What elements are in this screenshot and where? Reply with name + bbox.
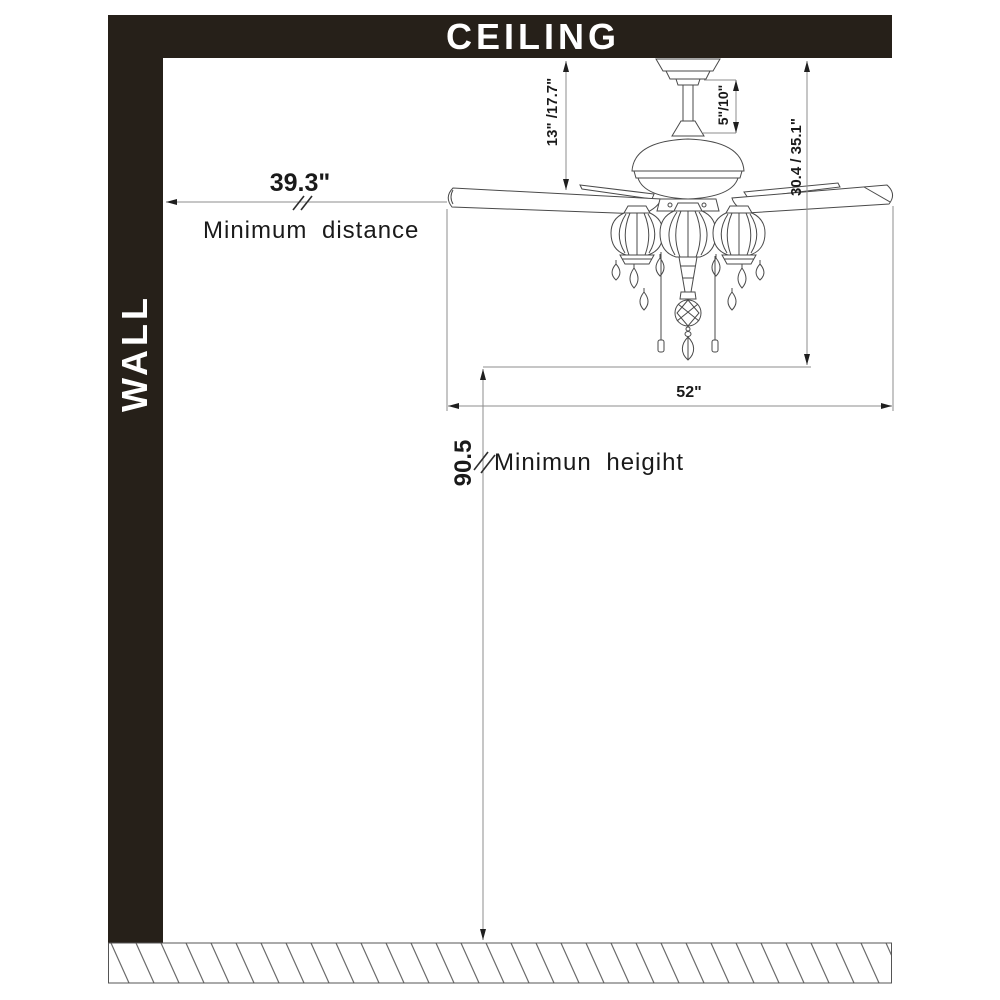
fan-mounting-diagram: CEILING WALL 13" /17.7" 5"/10" 30.4 / 35…: [0, 0, 1000, 1000]
ceiling-fan-drawing: [448, 59, 892, 360]
wall-label: WALL: [113, 243, 157, 463]
light-kit: [611, 203, 765, 360]
dim-ceiling-to-bottom-label: 30.4 / 35.1": [788, 62, 806, 252]
crystal-ball-finial: [675, 257, 701, 360]
fan-downrod: [672, 85, 704, 136]
dim-min-distance-caption: Minimum distance: [203, 217, 443, 243]
dim-min-distance-value: 39.3": [230, 169, 370, 197]
dim-blade-span-value: 52": [649, 384, 729, 406]
fan-canopy: [656, 59, 720, 85]
dim-downrod-length-label: 5"/10": [715, 35, 731, 175]
dim-min-height-value: 90.5: [450, 408, 476, 518]
dim-min-height-caption: Minimun heigiht: [494, 449, 774, 477]
ceiling-label: CEILING: [383, 15, 683, 59]
floor-slab: [109, 943, 892, 983]
dim-hanger-height-label: 13" /17.7": [544, 27, 562, 197]
wall-bar: [108, 15, 163, 943]
light-shade-left: [611, 206, 663, 264]
diagram-artwork: [0, 0, 1000, 1000]
light-shade-right: [713, 206, 765, 264]
